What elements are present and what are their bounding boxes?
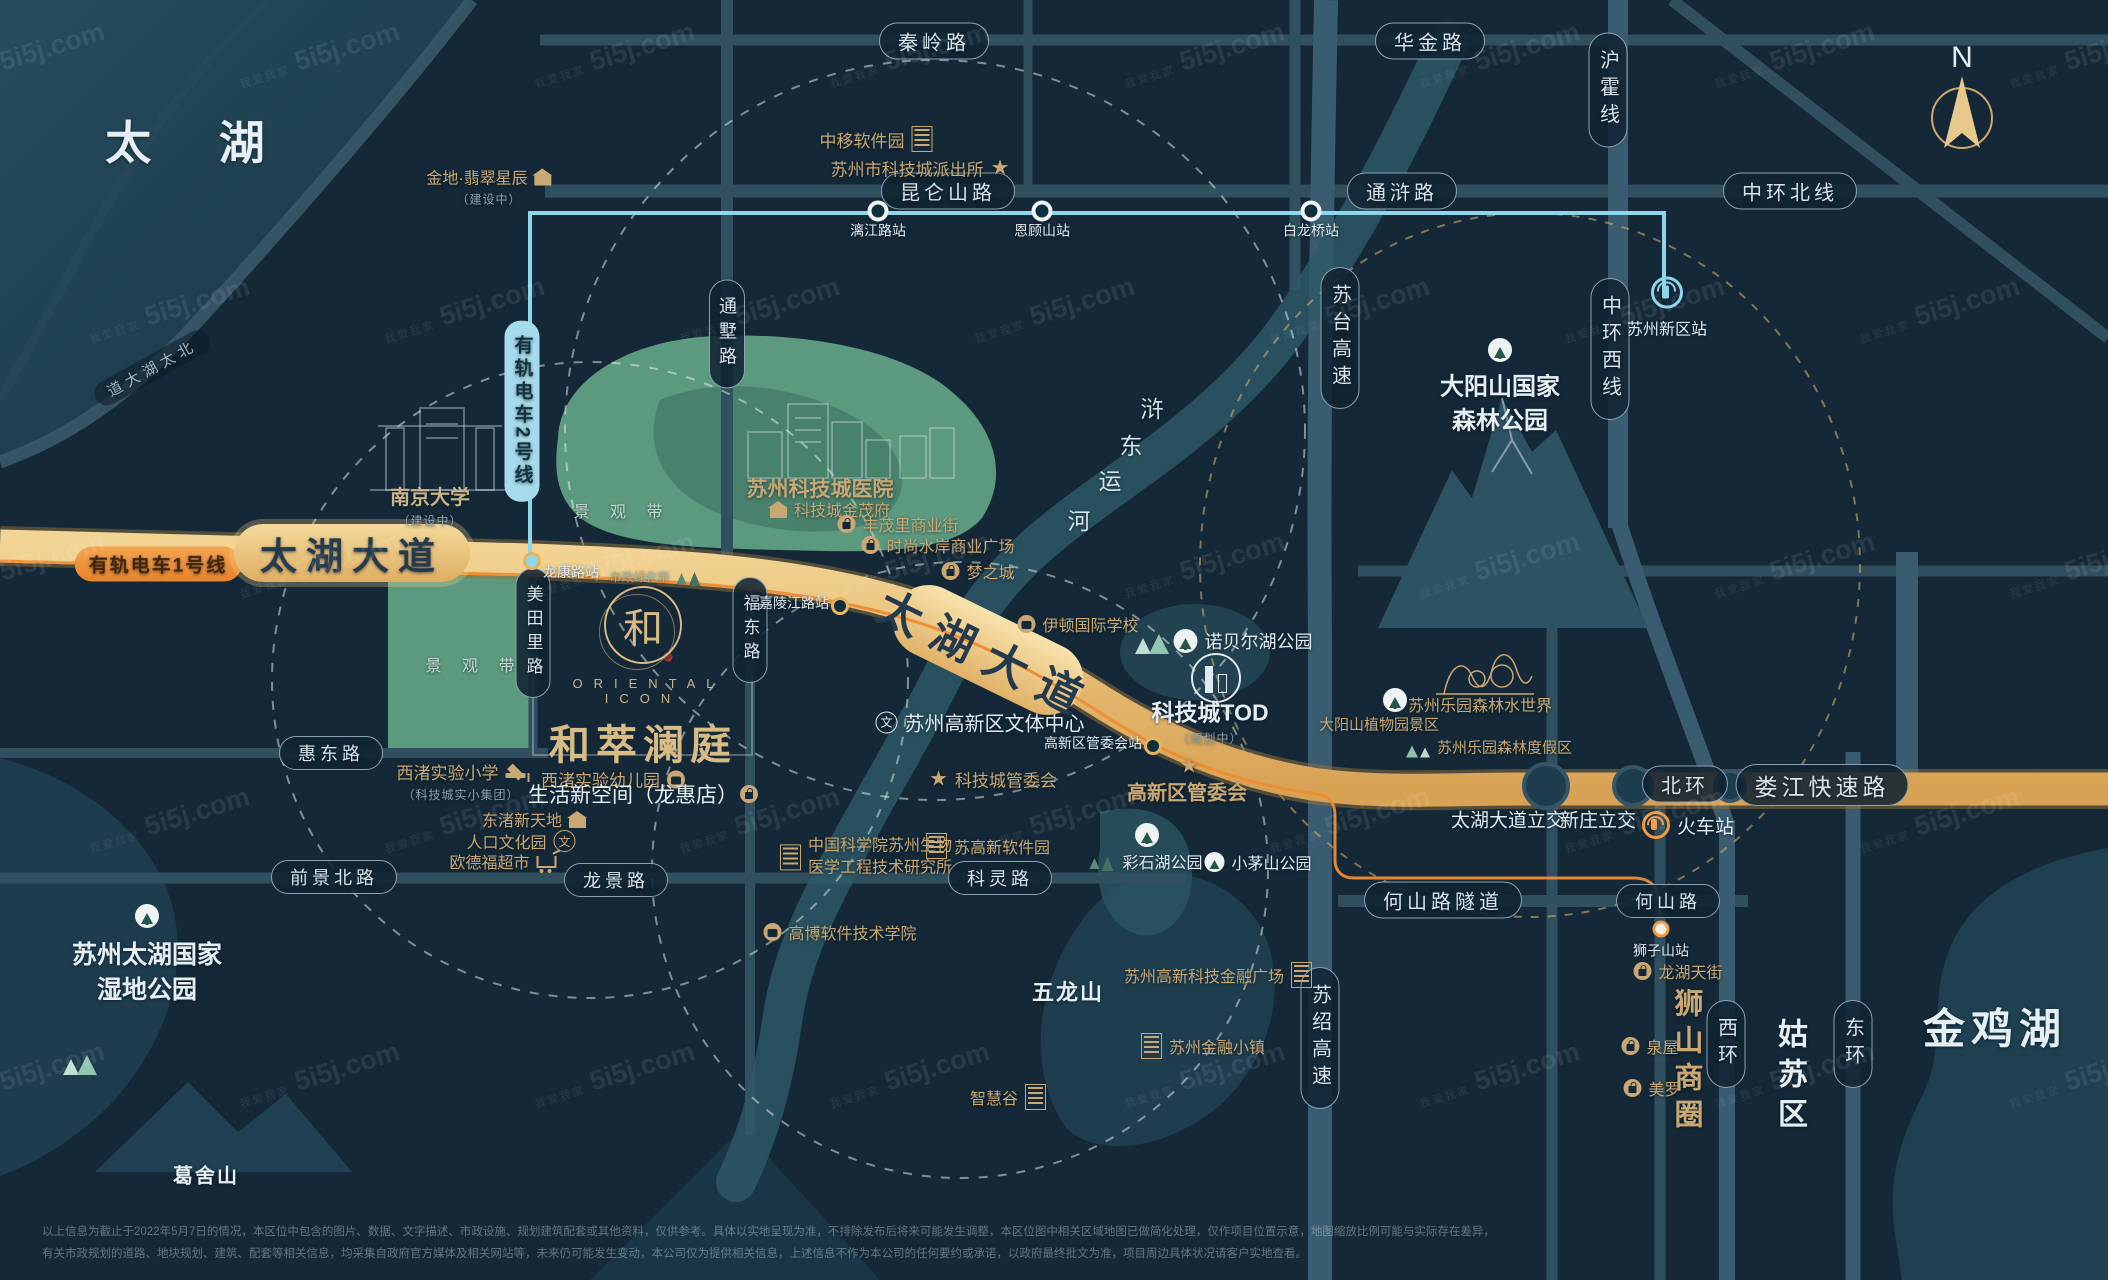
deco-zhiwuyuan-treec [1383, 688, 1407, 712]
canal-char-2: 东 [1120, 427, 1143, 461]
pill-beihuan: 北环 [1642, 766, 1728, 803]
pill-zhonghuan-west: 中环西线 [1591, 278, 1630, 420]
poi-sugaoxin-software-park-text: 苏高新软件园 [954, 834, 1050, 858]
rail-icon [1642, 811, 1670, 839]
poi-keji-jinrong-plaza-text: 苏州高新科技金融广场 [1124, 963, 1284, 987]
project-tagline: 生活新空间（龙惠店） [528, 779, 758, 809]
pill-sushao-expressway: 苏绍高速 [1301, 967, 1340, 1109]
trees-dark-icon [677, 566, 703, 586]
project-tagline-text: 生活新空间（龙惠店） [528, 779, 733, 809]
poi-nobel-lake-park-text: 诺贝尔湖公园 [1205, 628, 1313, 654]
pill-huidong-road: 惠东路 [279, 736, 383, 770]
pill-huajin-road-text: 华金路 [1394, 27, 1466, 56]
disclaimer-line-1: 以上信息为截止于2022年5月7日的情况，本区位中包含的图片、数据、文字描述、市… [42, 1222, 1495, 1244]
disclaimer: 以上信息为截止于2022年5月7日的情况，本区位中包含的图片、数据、文字描述、市… [42, 1222, 1495, 1266]
poi-zhihuigu-text: 智慧谷 [970, 1085, 1018, 1109]
poi-gaoxin-guanweihui-text: 高新区管委会 [1127, 777, 1247, 806]
area-wulongshan: 五龙山 [1032, 975, 1104, 1007]
station-lijianglu-dot [868, 201, 889, 222]
poi-xiaomaoshan-park-text: 小茅山公园 [1231, 850, 1311, 874]
pill-loujiang-expressway: 娄江快速路 [1736, 764, 1909, 806]
cap-icon [506, 773, 526, 778]
house-icon [770, 508, 787, 518]
pill-heshan-tunnel-text: 何山路隧道 [1383, 886, 1503, 915]
palms-icon [1404, 737, 1430, 757]
pill-qinling-road-text: 秦岭路 [898, 27, 970, 56]
pill-donghuan: 东环 [1834, 1000, 1873, 1088]
poi-forest-resort-text: 苏州乐园森林度假区 [1437, 737, 1572, 758]
poi-forest-water-world: 苏州乐园森林水世界 [1408, 692, 1552, 716]
pill-sutai-expressway-text: 苏台高速 [1326, 284, 1355, 392]
poi-xizhu-primary-school-sub: （科技城实小集团） [402, 786, 519, 803]
poi-railway-station-text: 火车站 [1677, 812, 1734, 839]
station-bailongqiao-dot [1301, 201, 1322, 222]
area-gusu: 姑苏区 [1767, 1018, 1811, 1138]
pill-qianjing-north-road-text: 前景北路 [290, 864, 378, 890]
treec-sm-icon [1204, 852, 1224, 872]
station-jialingjianglu: 嘉陵江路站 [831, 597, 849, 615]
badge-icon [763, 923, 781, 941]
pill-zhonghuan-north: 中环北线 [1723, 173, 1857, 210]
label-taihu-interchange-text: 太湖大道立交 [1451, 806, 1565, 833]
poi-kejicheng-guanweihui: ★科技城管委会 [929, 767, 1057, 792]
pill-zhonghuan-west-text: 中环西线 [1596, 295, 1625, 403]
poi-gaoxin-guanweihui-star: ★ [1180, 756, 1199, 777]
poi-jinrong-town-text: 苏州金融小镇 [1169, 1034, 1265, 1058]
station-bailongqiao: 白龙桥站 [1301, 201, 1322, 222]
canal-char-4: 河 [1068, 502, 1091, 536]
pill-tonghu-road: 通浒路 [1347, 173, 1457, 210]
pill-heshan-road-text: 何山路 [1635, 888, 1701, 914]
poi-nanjing-university-sub: （建设中） [397, 512, 462, 529]
poi-oudefu-market: 欧德福超市 [449, 849, 556, 873]
station-longkanglu-label: 龙康路站 [543, 562, 599, 582]
poi-gaobo-college: 高博软件技术学院 [763, 920, 916, 944]
area-gusu-text: 姑苏区 [1767, 1018, 1811, 1138]
station-shizishan: 狮子山站 [1653, 921, 1670, 938]
poi-xizhu-primary-school-text: 西渚实验小学 [397, 759, 499, 784]
project-logo-mark-ring: 和 [604, 586, 682, 664]
label-shishan-shangquan: 狮山商圈 [1665, 988, 1707, 1136]
star-icon: ★ [929, 769, 948, 790]
bld-icon [1141, 1033, 1162, 1059]
poi-forest-resort: 苏州乐园森林度假区 [1404, 737, 1572, 758]
poi-yidun-school: 伊顿国际学校 [1017, 612, 1138, 636]
location-map: 太 湖金鸡湖姑苏区苏州太湖国家 湿地公园大阳山国家 森林公园葛舍山五龙山浒东运河… [0, 0, 2108, 1280]
poi-dongzhu-xintiandi: 东渚新天地 [482, 807, 586, 831]
area-jinjihu-text: 金鸡湖 [1923, 996, 2067, 1057]
pill-huidong-road-text: 惠东路 [298, 740, 364, 766]
badge-icon [1017, 615, 1035, 633]
tram-line1-pill: 有轨电车1号线 [75, 547, 242, 582]
belt-upper: 景 观 带 [574, 498, 671, 522]
poi-longhu-tianjie: 龙湖天街 [1633, 959, 1722, 983]
station-engushan: 恩顾山站 [1032, 201, 1053, 222]
pill-xihuan: 西环 [1707, 1000, 1746, 1088]
wen-icon: 文 [876, 711, 898, 733]
station-longkanglu-dot [523, 552, 541, 570]
treec-icon [1383, 688, 1407, 712]
canal-char-1: 浒 [1141, 390, 1164, 424]
station-longkanglu: 龙康路站 [523, 552, 541, 570]
poi-dayangshan-botanic-text: 大阳山植物园景区 [1319, 714, 1439, 735]
pill-huhuo-line: 沪霍线 [1589, 33, 1628, 148]
tram-line1-pill-text: 有轨电车1号线 [89, 551, 228, 578]
station-lijianglu: 漓江路站 [868, 201, 889, 222]
treec-icon [1488, 338, 1512, 362]
label-shishan-shangquan-text: 狮山商圈 [1665, 988, 1707, 1136]
poi-jindi-sub: （建设中） [456, 191, 521, 208]
area-wetland-text: 苏州太湖国家 湿地公园 [72, 938, 222, 1008]
poi-xizhu-primary-school: 西渚实验小学（科技城实小集团） [397, 759, 526, 803]
poi-keji-jinrong-plaza: 苏州高新科技金融广场 [1124, 962, 1312, 988]
bld-icon [926, 833, 947, 859]
trees-icon [63, 1049, 97, 1075]
poi-caishihu-park-text: 彩石湖公园 [1122, 849, 1202, 873]
pill-xihuan-text: 西环 [1712, 1017, 1741, 1071]
pill-heshan-tunnel: 何山路隧道 [1364, 882, 1522, 919]
station-shizishan-label: 狮子山站 [1633, 941, 1689, 961]
bld-icon [780, 844, 801, 870]
pill-keling-road: 科灵路 [948, 861, 1052, 895]
pill-heshan-road: 何山路 [1616, 884, 1720, 918]
station-jialingjianglu-dot [831, 597, 849, 615]
municipal-green-belt: 市政绿化带 [609, 566, 702, 586]
pill-longjing-road: 龙景路 [564, 863, 668, 897]
belt-upper-text: 景 观 带 [574, 498, 671, 522]
area-dayangshan: 大阳山国家 森林公园 [1440, 370, 1560, 437]
north-taihu-avenue-text: 道大湖太北 [103, 335, 201, 402]
pill-tongshu-road-text: 通墅路 [714, 297, 740, 372]
pill-sutai-expressway: 苏台高速 [1321, 267, 1360, 409]
map-labels-layer: 太 湖金鸡湖姑苏区苏州太湖国家 湿地公园大阳山国家 森林公园葛舍山五龙山浒东运河… [0, 0, 2108, 1280]
poi-oudefu-market-text: 欧德福超市 [449, 849, 529, 873]
area-dayangshan-text: 大阳山国家 森林公园 [1440, 370, 1560, 437]
metro-icon [1651, 277, 1683, 309]
poi-jindi-text: 金地·翡翠星辰 [426, 165, 527, 189]
station-shizishan-dot [1653, 921, 1670, 938]
poi-zhihuigu: 智慧谷 [970, 1084, 1046, 1110]
poi-zhongyi-software-park: 中移软件园 [820, 126, 933, 152]
tram-line2-pill-text: 有轨电车2号线 [509, 335, 536, 488]
trees-dark-icon [1089, 851, 1115, 871]
station-bailongqiao-label: 白龙桥站 [1283, 221, 1339, 241]
treec-icon [1135, 823, 1159, 847]
treec-icon [1174, 629, 1198, 653]
area-gesheshan: 葛舍山 [173, 1160, 239, 1189]
bld-icon [912, 126, 933, 152]
poi-gaoxin-guanweihui: 高新区管委会 [1127, 777, 1247, 806]
bag-icon [1633, 962, 1651, 980]
area-gesheshan-text: 葛舍山 [173, 1160, 239, 1189]
area-jinjihu: 金鸡湖 [1923, 996, 2067, 1057]
poi-railway-station: 火车站 [1642, 811, 1734, 839]
tram-line2-pill: 有轨电车2号线 [505, 321, 540, 502]
station-lijianglu-label: 漓江路站 [850, 221, 906, 241]
star-icon: ★ [991, 158, 1010, 179]
poi-yidun-school-text: 伊顿国际学校 [1042, 612, 1138, 636]
poi-wenti-center: 文苏州高新区文体中心 [876, 708, 1085, 737]
label-taihu-interchange: 太湖大道立交 [1451, 806, 1565, 833]
poi-caishihu-park: 彩石湖公园 [1089, 849, 1202, 873]
poi-sugaoxin-software-park: 苏高新软件园 [926, 833, 1050, 859]
pill-longjing-road-text: 龙景路 [583, 867, 649, 893]
poi-kejicheng-guanweihui-text: 科技城管委会 [955, 767, 1057, 792]
treec-icon [135, 904, 159, 928]
poi-paichusuo-text: 苏州市科技城派出所 [831, 156, 984, 181]
station-xinqu-text: 苏州新区站 [1627, 316, 1707, 340]
poi-gaobo-college-text: 高博软件技术学院 [788, 920, 916, 944]
station-engushan-dot [1032, 201, 1053, 222]
station-xinqu: 苏州新区站 [1627, 277, 1707, 340]
poi-nanjing-university-text: 南京大学 [390, 481, 470, 510]
canal-char-2-text: 东 [1120, 427, 1143, 461]
poi-dayangshan-botanic: 大阳山植物园景区 [1319, 714, 1439, 735]
taihu-avenue-label-left-text: 太湖大道 [260, 526, 444, 580]
pill-tonghu-road-text: 通浒路 [1366, 177, 1438, 206]
poi-longhu-tianjie-text: 龙湖天街 [1658, 959, 1722, 983]
star-icon: ★ [1180, 756, 1199, 777]
bag-icon [1623, 1079, 1641, 1097]
canal-char-4-text: 河 [1068, 502, 1091, 536]
project-logo-mark: 和 [623, 596, 663, 654]
north-taihu-avenue: 道大湖太北 [90, 326, 214, 410]
poi-mengzhicheng: 梦之城 [941, 559, 1014, 583]
pill-sushao-expressway-text: 苏绍高速 [1306, 984, 1335, 1092]
canal-char-3-text: 运 [1099, 462, 1122, 496]
deco-dayangshan-treec [1488, 338, 1512, 362]
belt-lower: 景 观 带 [426, 652, 523, 676]
poi-kejicheng-tod: 科技城TOD（规划中） [1151, 694, 1268, 747]
bld-icon [1291, 962, 1312, 988]
wen-icon: 文 [554, 830, 576, 852]
deco-wetland-trees [63, 1049, 97, 1075]
pill-keling-road-text: 科灵路 [967, 865, 1033, 891]
station-jialingjianglu-label: 嘉陵江路站 [759, 593, 829, 613]
bag-icon [837, 515, 855, 533]
poi-wenti-center-text: 苏州高新区文体中心 [905, 708, 1085, 737]
pill-huajin-road: 华金路 [1375, 23, 1485, 60]
bld-icon [1025, 1084, 1046, 1110]
pill-qinling-road: 秦岭路 [879, 23, 989, 60]
poi-mengzhicheng-text: 梦之城 [966, 559, 1014, 583]
poi-dongzhu-xintiandi-text: 东渚新天地 [482, 807, 562, 831]
poi-jindi: 金地·翡翠星辰（建设中） [426, 165, 551, 208]
project-name: 和萃澜庭 [528, 711, 758, 771]
disclaimer-line-2: 有关市政规划的道路、地块规划、建筑、配套等相关信息，均采集自政府官方媒体及相关网… [42, 1244, 1495, 1266]
poi-forest-water-world-text: 苏州乐园森林水世界 [1408, 692, 1552, 716]
poi-nobel-lake-park: 诺贝尔湖公园 [1174, 628, 1313, 654]
belt-lower-text: 景 观 带 [426, 652, 523, 676]
house-icon [569, 818, 586, 828]
deco-nobel-trees [1135, 628, 1169, 654]
poi-xiaomaoshan-park: 小茅山公园 [1204, 850, 1311, 874]
poi-paichusuo: 苏州市科技城派出所★ [831, 156, 1010, 181]
area-wetland: 苏州太湖国家 湿地公园 [72, 938, 222, 1008]
taihu-avenue-label-left: 太湖大道 [234, 524, 470, 582]
canal-char-3: 运 [1099, 462, 1122, 496]
canal-char-1-text: 浒 [1141, 390, 1164, 424]
label-xinzhuang-interchange: 新庄立交 [1560, 806, 1636, 833]
poi-kejicheng-tod-text: 科技城TOD [1151, 694, 1268, 728]
station-engushan-label: 恩顾山站 [1014, 221, 1070, 241]
poi-jinrong-town: 苏州金融小镇 [1141, 1033, 1265, 1059]
shopping-bag-icon [740, 785, 758, 803]
pill-qianjing-north-road: 前景北路 [271, 860, 397, 894]
area-taihu-text: 太 湖 [105, 107, 279, 173]
trees-icon [1135, 628, 1169, 654]
pill-beihuan-text: 北环 [1661, 770, 1709, 799]
poi-shishang-shuian-text: 时尚水岸商业广场 [886, 533, 1014, 557]
deco-wetland-treec [135, 904, 159, 928]
bag-icon [1621, 1037, 1639, 1055]
bag-icon [941, 562, 959, 580]
pill-loujiang-expressway-text: 娄江快速路 [1755, 768, 1890, 802]
poi-kejicheng-tod-sub: （规划中） [1177, 730, 1242, 747]
poi-shishang-shuian: 时尚水岸商业广场 [861, 533, 1014, 557]
pill-tongshu-road: 通墅路 [709, 280, 745, 389]
deco-caishihu-treec [1135, 823, 1159, 847]
project-logo: 和 ORIENTAL ICON 和萃澜庭 生活新空间（龙惠店） [528, 586, 758, 809]
project-logo-en: ORIENTAL ICON [528, 676, 758, 706]
cart-icon [537, 856, 557, 868]
pill-zhonghuan-north-text: 中环北线 [1742, 177, 1838, 206]
pill-kunlunshan-road-text: 昆仑山路 [900, 177, 996, 206]
pill-donghuan-text: 东环 [1839, 1017, 1868, 1071]
bag-icon [861, 536, 879, 554]
pill-huhuo-line-text: 沪霍线 [1594, 50, 1623, 131]
poi-zhongyi-software-park-text: 中移软件园 [820, 127, 905, 152]
poi-nanjing-university: 南京大学（建设中） [390, 481, 470, 529]
area-wulongshan-text: 五龙山 [1032, 975, 1104, 1007]
compass-n-label: N [1951, 41, 1973, 75]
municipal-green-belt-text: 市政绿化带 [609, 568, 669, 585]
label-xinzhuang-interchange-text: 新庄立交 [1560, 806, 1636, 833]
area-taihu: 太 湖 [105, 107, 279, 173]
house-icon [535, 175, 552, 185]
